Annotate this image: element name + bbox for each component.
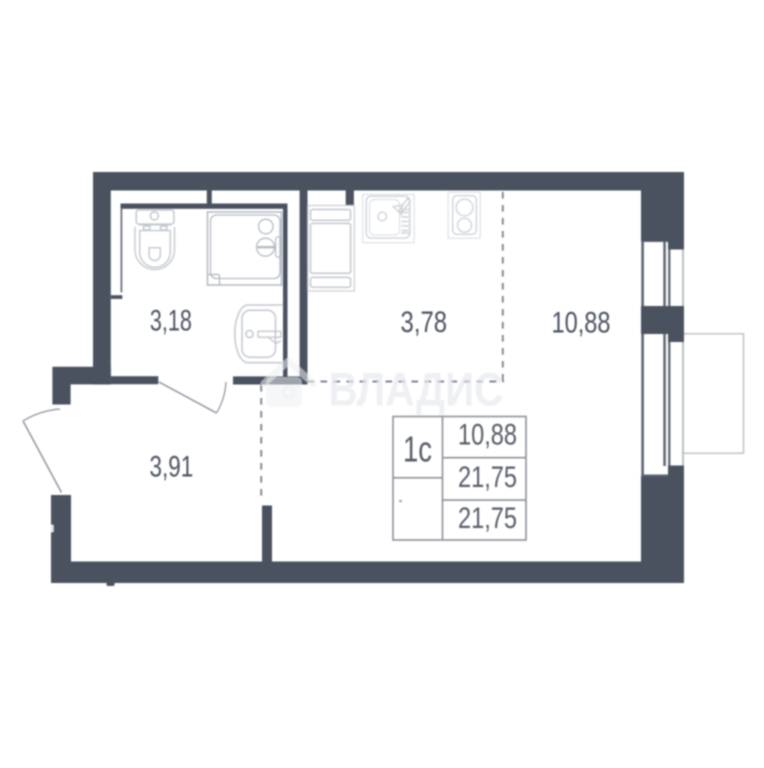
svg-text:21,75: 21,75	[458, 461, 517, 494]
svg-text:3,78: 3,78	[401, 306, 448, 339]
svg-text:21,75: 21,75	[458, 502, 517, 535]
svg-text:ВЛАДИС: ВЛАДИС	[329, 363, 504, 416]
svg-text:3,18: 3,18	[150, 305, 192, 338]
svg-text:1с: 1с	[403, 429, 432, 470]
svg-text:10,88: 10,88	[458, 419, 517, 452]
svg-text:3,91: 3,91	[150, 451, 194, 484]
svg-text:10,88: 10,88	[552, 307, 611, 340]
